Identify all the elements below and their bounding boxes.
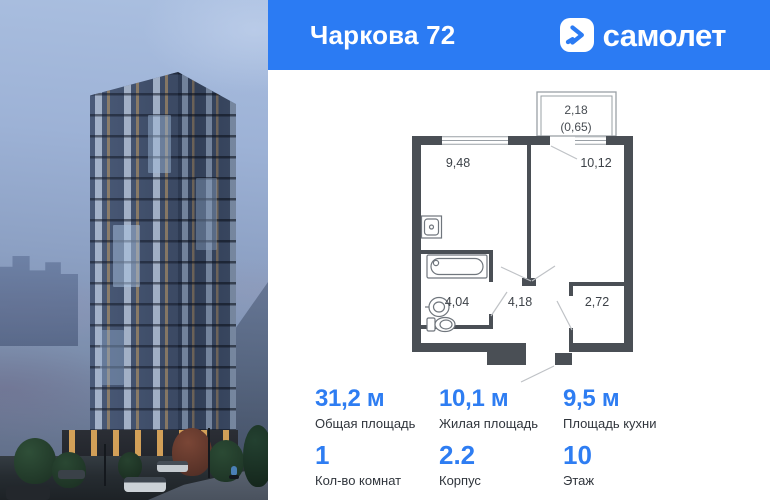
meta-value: 2.2 [439, 442, 563, 469]
glass-balcony [196, 178, 217, 250]
bathtub [427, 255, 487, 278]
stat-total-area: 31,2 м Общая площадь [315, 386, 439, 431]
kitchen-sink [422, 216, 442, 238]
car [157, 461, 188, 472]
samolet-logo-text: самолет [603, 20, 726, 51]
tree [243, 425, 268, 487]
project-title: Чаркова 72 [310, 20, 455, 51]
cyclist [231, 466, 237, 476]
balcony-area-label: (0,65) [560, 120, 591, 134]
stat-label: Общая площадь [315, 416, 439, 431]
meta-label: Кол-во комнат [315, 473, 439, 488]
info-panel: Чаркова 72 самолет [268, 0, 770, 500]
floor-plan: 2,18 (0,65) 9,48 10,12 4,04 4,18 2,72 [400, 85, 710, 397]
stat-value: 9,5 м [563, 386, 656, 412]
car [58, 470, 85, 479]
closet-area-label: 2,72 [585, 295, 609, 309]
meta-value: 1 [315, 442, 439, 469]
hallway-area-label: 4,18 [508, 295, 532, 309]
kitchen-area-label: 9,48 [446, 156, 470, 170]
listing-card[interactable]: Чаркова 72 самолет [0, 0, 770, 500]
balcony-width-label: 2,18 [564, 103, 588, 117]
toilet [427, 318, 455, 332]
interior-walls [421, 145, 624, 344]
glass-balcony [113, 225, 140, 287]
stat-value: 31,2 м [315, 386, 439, 412]
glass-balcony [148, 115, 171, 173]
glass-balcony [100, 330, 124, 385]
stat-label: Жилая площадь [439, 416, 563, 431]
car [6, 486, 50, 500]
street-lamp [208, 428, 210, 478]
stat-living-area: 10,1 м Жилая площадь [439, 386, 563, 431]
tree [14, 438, 56, 484]
bathroom-area-label: 4,04 [445, 295, 469, 309]
building-photo [0, 0, 268, 500]
area-stats-row: 31,2 м Общая площадь 10,1 м Жилая площад… [315, 386, 656, 431]
stat-kitchen-area: 9,5 м Площадь кухни [563, 386, 656, 431]
meta-building: 2.2 Корпус [439, 442, 563, 488]
stat-value: 10,1 м [439, 386, 563, 412]
meta-label: Корпус [439, 473, 563, 488]
stat-label: Площадь кухни [563, 416, 656, 431]
street-lamp [104, 444, 106, 486]
meta-row: 1 Кол-во комнат 2.2 Корпус 10 Этаж [315, 442, 594, 488]
samolet-logo: самолет [560, 18, 726, 52]
living-area-label: 10,12 [580, 156, 611, 170]
car [124, 477, 166, 492]
meta-label: Этаж [563, 473, 594, 488]
tree [118, 452, 142, 480]
header-bar: Чаркова 72 самолет [268, 0, 770, 70]
meta-floor: 10 Этаж [563, 442, 594, 488]
meta-rooms: 1 Кол-во комнат [315, 442, 439, 488]
samolet-logo-icon [560, 18, 594, 52]
meta-value: 10 [563, 442, 594, 469]
